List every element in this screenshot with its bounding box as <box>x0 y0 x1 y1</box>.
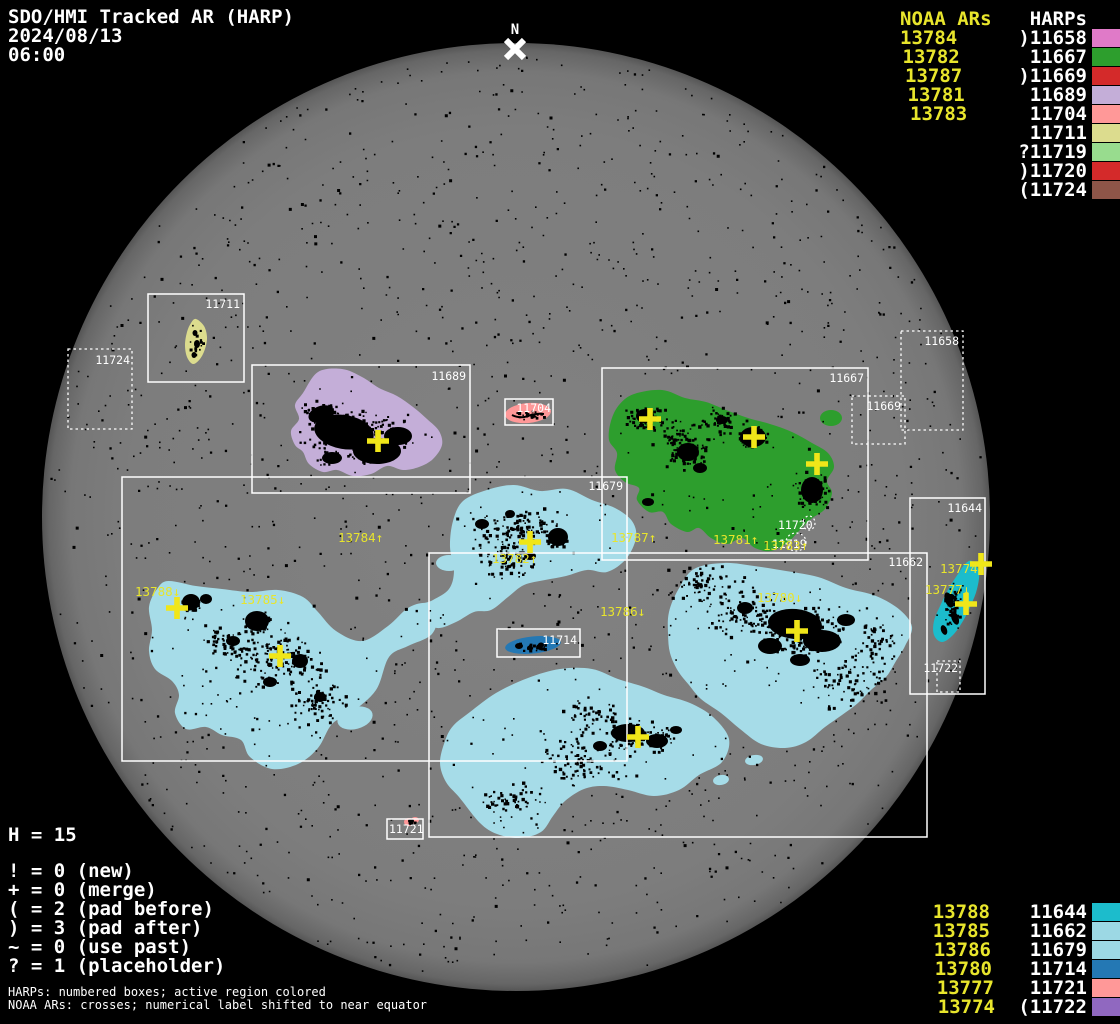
harp-box-label-11679: 11679 <box>588 479 623 493</box>
harp-color-swatch-11720 <box>1092 162 1120 180</box>
noaa-disk-label-13786: 13786↓ <box>600 604 645 619</box>
harp-color-swatch-11721 <box>1092 979 1120 997</box>
north-label: N <box>511 22 519 38</box>
harp-color-swatch-11679 <box>1092 941 1120 959</box>
harp-count: H = 15 <box>8 826 77 845</box>
noaa-disk-label-13788: 13788↓ <box>135 584 180 599</box>
harp-box-label-11721: 11721 <box>389 822 424 836</box>
noaa-disk-label-13782: 13782↑ <box>492 551 537 566</box>
noaa-disk-label-13780: 13780↓ <box>757 590 802 605</box>
sdo-hmi-harp-figure: 1171111724116891170411667116691165811679… <box>0 0 1120 1024</box>
harp-box-label-11644: 11644 <box>947 501 982 515</box>
harp-color-swatch-11704 <box>1092 105 1120 123</box>
legend-bottom-noaa-13774: 13774 <box>925 998 995 1017</box>
noaa-disk-label-13774: 13774↑ <box>940 561 985 576</box>
harp-box-label-11724: 11724 <box>95 353 130 367</box>
harp-color-swatch-11667 <box>1092 48 1120 66</box>
active-region-11679 <box>436 555 462 571</box>
harp-color-swatch-11724 <box>1092 181 1120 199</box>
symbol-count-line-5: ? = 1 (placeholder) <box>8 957 225 976</box>
harp-color-swatch-11711 <box>1092 124 1120 142</box>
harp-box-label-11662: 11662 <box>888 555 923 569</box>
harp-box-label-11689: 11689 <box>431 369 466 383</box>
harp-color-swatch-11714 <box>1092 960 1120 978</box>
legend-top-noaa-13783: 13783 <box>910 105 982 124</box>
harp-box-label-11711: 11711 <box>205 297 240 311</box>
harp-box-label-11669: 11669 <box>866 399 901 413</box>
noaa-disk-label-13787: 13787↑ <box>611 530 656 545</box>
noaa-disk-label-13785: 13785↓ <box>240 592 285 607</box>
harp-color-swatch-11669 <box>1092 67 1120 85</box>
legend-bottom-harp-11722: (11722 <box>990 998 1087 1017</box>
harp-box-label-11658: 11658 <box>924 334 959 348</box>
footnote-noaa: NOAA ARs: crosses; numerical label shift… <box>8 999 427 1012</box>
harp-box-label-11714: 11714 <box>542 633 577 647</box>
time-label: 06:00 <box>8 46 65 65</box>
active-region-11679 <box>460 567 474 575</box>
harp-box-label-11704: 11704 <box>516 401 551 415</box>
noaa-disk-label-13784: 13784↑ <box>338 530 383 545</box>
symbol-legend: ! = 0 (new)+ = 0 (merge)( = 2 (pad befor… <box>8 862 225 976</box>
harp-box-label-11722: 11722 <box>923 661 958 675</box>
noaa-disk-label-13783: 13783↑ <box>763 538 808 553</box>
harp-color-swatch-11662 <box>1092 922 1120 940</box>
harp-color-swatch-11644 <box>1092 903 1120 921</box>
noaa-disk-label-13777: 13777↓ <box>925 582 970 597</box>
legend-top-harp-11724: (11724 <box>990 181 1087 200</box>
harp-color-swatch-11719 <box>1092 143 1120 161</box>
placeholder-label-11720: 11720 <box>778 518 813 532</box>
harp-color-swatch-11689 <box>1092 86 1120 104</box>
harp-color-swatch-11658 <box>1092 29 1120 47</box>
active-region-11667 <box>820 410 842 426</box>
harp-color-swatch-11722 <box>1092 998 1120 1016</box>
noaa-disk-label-13781: 13781↑ <box>713 532 758 547</box>
harp-box-label-11667: 11667 <box>829 371 864 385</box>
